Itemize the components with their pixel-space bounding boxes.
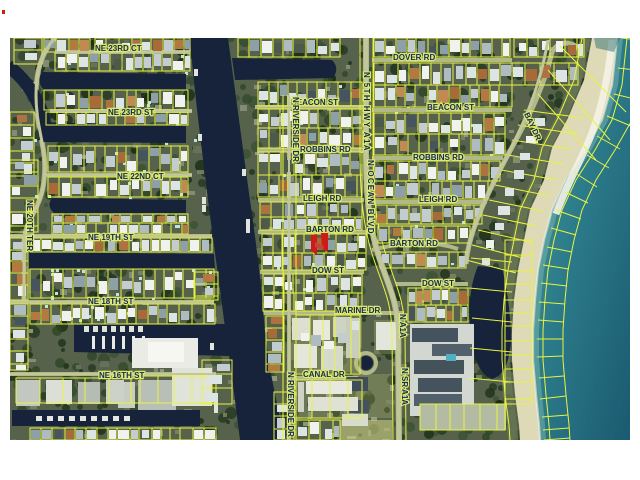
svg-text:N RIVERSIDE DR: N RIVERSIDE DR <box>291 97 300 162</box>
svg-text:NE 23RD CT: NE 23RD CT <box>95 44 142 53</box>
svg-text:BARTON RD: BARTON RD <box>390 239 438 248</box>
svg-text:MARINE DR: MARINE DR <box>335 306 381 315</box>
svg-text:ROBBINS RD: ROBBINS RD <box>300 145 351 154</box>
svg-text:NE 16TH ST: NE 16TH ST <box>99 371 144 380</box>
svg-text:CANAL DR: CANAL DR <box>303 370 345 379</box>
svg-text:N A1A: N A1A <box>398 314 407 338</box>
svg-text:BARTON RD: BARTON RD <box>306 225 354 234</box>
svg-text:LEIGH RD: LEIGH RD <box>303 194 341 203</box>
svg-text:NE 19TH ST: NE 19TH ST <box>88 233 133 242</box>
svg-text:N 5TH HWY A1A: N 5TH HWY A1A <box>362 72 371 152</box>
svg-text:NE 23RD ST: NE 23RD ST <box>108 108 154 117</box>
svg-text:DOW ST: DOW ST <box>422 279 454 288</box>
svg-text:ROBBINS RD: ROBBINS RD <box>413 153 464 162</box>
svg-text:N OCEAN BLVD: N OCEAN BLVD <box>366 160 375 235</box>
svg-text:NE 18TH ST: NE 18TH ST <box>88 297 133 306</box>
svg-text:NE 22ND CT: NE 22ND CT <box>117 172 164 181</box>
svg-text:NE 20TH TER: NE 20TH TER <box>25 200 34 251</box>
svg-text:DOW ST: DOW ST <box>312 266 344 275</box>
svg-text:DOVER RD: DOVER RD <box>393 53 435 62</box>
svg-text:N RIVERSIDE DR: N RIVERSIDE DR <box>286 372 295 437</box>
svg-text:BEACON ST: BEACON ST <box>427 103 474 112</box>
svg-text:N SR A1A: N SR A1A <box>400 368 409 405</box>
svg-text:LEIGH RD: LEIGH RD <box>419 195 457 204</box>
